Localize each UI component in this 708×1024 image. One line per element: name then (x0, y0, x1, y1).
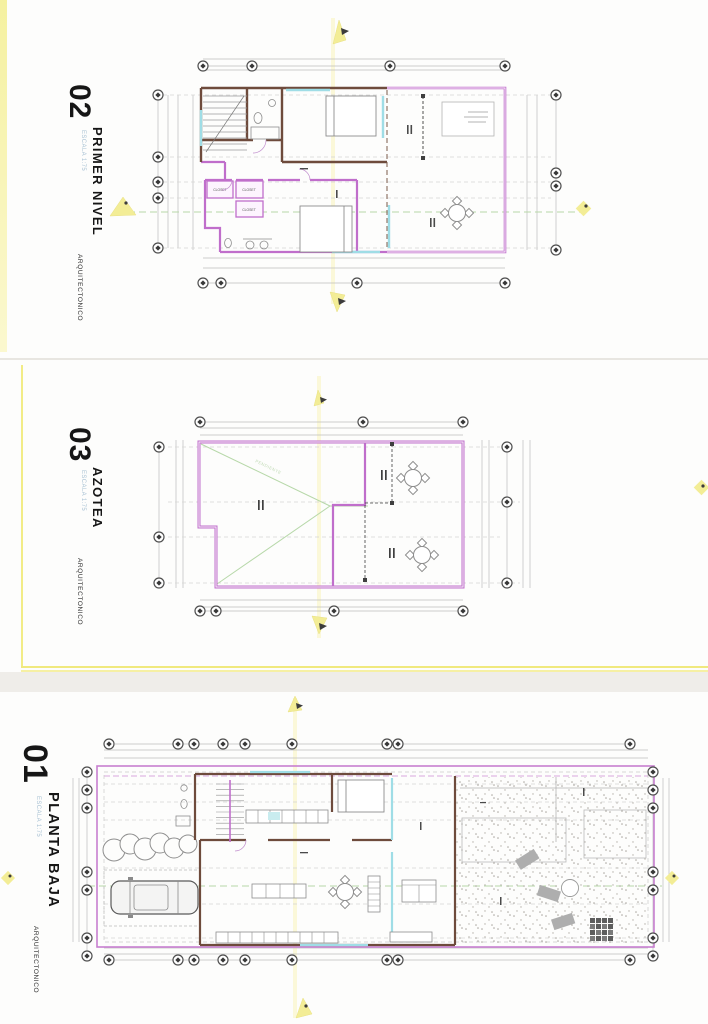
closet-label: CLOSET (242, 208, 256, 212)
beds (300, 96, 376, 252)
sheet-scale-label: ESCALA 1:75 (35, 796, 41, 837)
sheet-planta-baja: 01 PLANTA BAJA ESCALA 1:75 ARQUITECTONIC… (0, 692, 708, 1024)
sheet-azotea: PENDIENTE (0, 360, 708, 672)
sheet-discipline-label: ARQUITECTONICO (76, 254, 83, 321)
scanned-plan-page: CLOSET CLOSET CLOSET (0, 0, 708, 1024)
door-swings (222, 140, 310, 190)
garden-table (562, 880, 579, 897)
shelf (368, 876, 380, 912)
car (111, 877, 198, 918)
shrubs (103, 833, 197, 861)
terrace-dashed (363, 442, 394, 582)
sheet-discipline-label: ARQUITECTONICO (76, 558, 83, 625)
terrace-table (405, 538, 438, 571)
closet-label: CLOSET (242, 188, 256, 192)
bathroom-fixtures (225, 100, 279, 250)
sheet-number: 02 (62, 84, 96, 119)
reference-dashed-lines (168, 447, 520, 583)
dining-table (328, 875, 361, 908)
dining-table (440, 196, 473, 229)
house-walls (195, 774, 455, 945)
sheet-scale-label: ESCALA 1:75 (80, 470, 86, 511)
door-swing (235, 840, 246, 851)
section-arrows-yellow (312, 390, 708, 634)
kitchen-island (252, 884, 306, 898)
roof-slope-lines (201, 444, 368, 584)
study-bed (338, 780, 384, 812)
stairs (216, 780, 244, 842)
sheet-primer-nivel: CLOSET CLOSET CLOSET (0, 0, 708, 360)
sheet-number: 03 (62, 427, 96, 462)
sheet-number: 01 (15, 744, 54, 784)
sheet-title: PRIMER NIVEL (90, 127, 105, 236)
base-cabinets (216, 932, 338, 943)
sofa (402, 880, 436, 902)
sheet-title: PLANTA BAJA (45, 792, 61, 908)
sheet-title: AZOTEA (90, 467, 105, 529)
stairs (203, 96, 247, 152)
kitchen-counter (246, 810, 328, 823)
terrace-table (396, 461, 429, 494)
tv-console (390, 932, 432, 942)
centerline-highlight (317, 376, 321, 638)
sheet-scale-label: ESCALA 1:75 (80, 130, 86, 171)
roof-slope-label: PENDIENTE (255, 458, 283, 475)
plan-azotea: PENDIENTE (0, 360, 708, 672)
void-dashed (421, 94, 425, 160)
note-box (442, 102, 494, 136)
plan-planta-baja (0, 692, 708, 1024)
sheet-discipline-label: ARQUITECTONICO (32, 926, 39, 993)
drain-marks (258, 470, 395, 558)
sheet-gap (0, 672, 708, 692)
plan-primer-nivel: CLOSET CLOSET CLOSET (0, 0, 708, 358)
